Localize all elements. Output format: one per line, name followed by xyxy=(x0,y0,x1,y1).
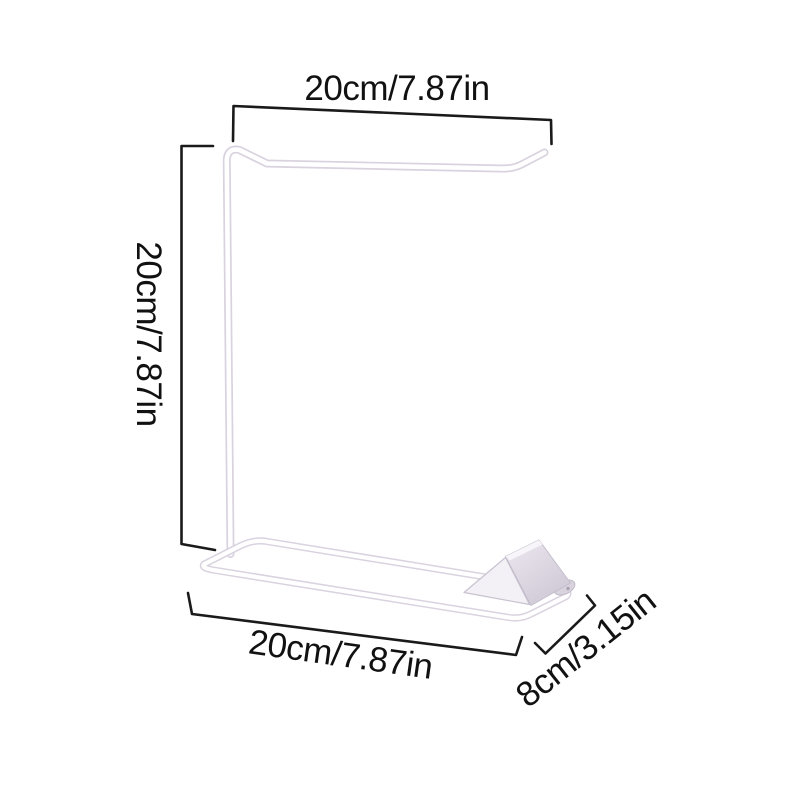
wire-upright-arm-core xyxy=(227,150,545,554)
wire-upright-arm-outline xyxy=(227,150,545,554)
dimension-label-top: 20cm/7.87in xyxy=(304,69,489,108)
dimension-bracket-left xyxy=(182,146,216,550)
product-stand xyxy=(203,150,577,618)
plate-tab-hole xyxy=(566,587,569,590)
dimension-bracket-top xyxy=(233,106,552,144)
dimension-label-left: 20cm/7.87in xyxy=(129,241,168,426)
product-dimension-diagram: 20cm/7.87in 20cm/7.87in 20cm/7.87in 8cm/… xyxy=(0,0,800,800)
diagram-canvas: 20cm/7.87in 20cm/7.87in 20cm/7.87in 8cm/… xyxy=(0,0,800,800)
